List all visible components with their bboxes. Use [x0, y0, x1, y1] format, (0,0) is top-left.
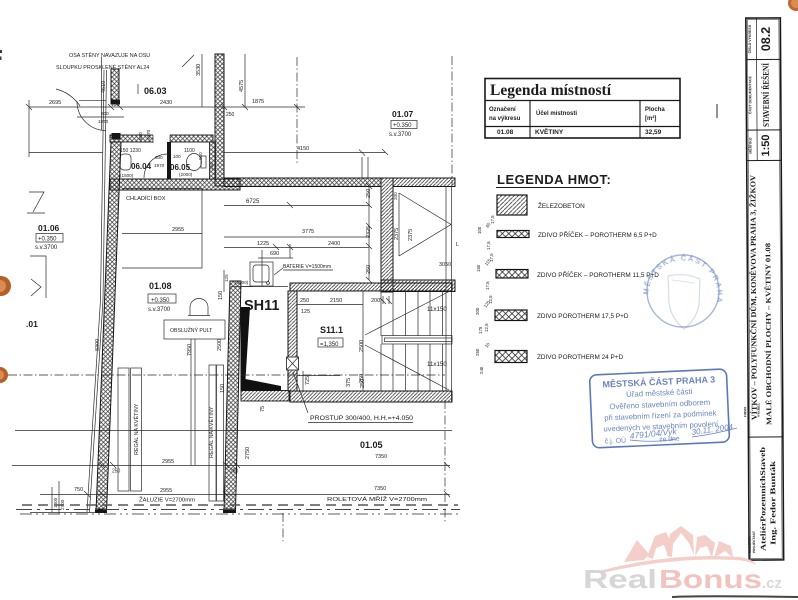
svg-text:ŽELEZOBETON: ŽELEZOBETON: [538, 201, 585, 210]
svg-text:12,5: 12,5: [484, 323, 489, 332]
svg-text:01.06: 01.06: [38, 223, 60, 233]
svg-text:Legenda místností: Legenda místností: [490, 82, 612, 99]
svg-text:01.05: 01.05: [360, 440, 383, 450]
svg-text:REGÁL NA KVĚTINY: REGÁL NA KVĚTINY: [132, 403, 140, 455]
svg-text:AteliérPozemníchStaveb: AteliérPozemníchStaveb: [758, 447, 768, 551]
svg-text:ŽALUZIE V=2700mm: ŽALUZIE V=2700mm: [139, 496, 195, 504]
svg-text:17,5: 17,5: [490, 215, 495, 224]
svg-text:2955: 2955: [162, 459, 174, 465]
svg-text:Real: Real: [583, 564, 657, 594]
svg-text:375: 375: [346, 378, 352, 387]
svg-text:Bonus: Bonus: [659, 564, 762, 594]
svg-text:1970: 1970: [154, 163, 165, 168]
svg-text:150: 150: [220, 384, 226, 393]
svg-text:4150: 4150: [297, 146, 309, 152]
svg-text:Účel místnosti: Účel místnosti: [536, 110, 577, 117]
svg-text:+0.350: +0.350: [393, 123, 412, 129]
svg-text:06.05: 06.05: [170, 163, 191, 172]
svg-text:ZDIVO PŘÍČEK – POROTHERM 11,: ZDIVO PŘÍČEK – POROTHERM 11,5 P+D: [537, 270, 659, 279]
svg-text:12,5: 12,5: [488, 295, 493, 304]
svg-text:2750: 2750: [245, 447, 251, 459]
svg-text:32,59: 32,59: [645, 129, 662, 136]
svg-text:150 1230: 150 1230: [120, 148, 141, 154]
svg-text:800: 800: [101, 111, 109, 116]
svg-text:LEGENDA HMOT:: LEGENDA HMOT:: [497, 172, 611, 187]
svg-text:ČÁST DOKUMENTACE: ČÁST DOKUMENTACE: [747, 75, 752, 114]
svg-text:2375: 2375: [394, 228, 400, 240]
svg-text:690: 690: [270, 251, 279, 257]
svg-text:6725: 6725: [246, 199, 260, 205]
svg-text:s.v.3700: s.v.3700: [148, 307, 171, 313]
svg-text:01.08: 01.08: [497, 129, 514, 136]
svg-text:2500: 2500: [359, 340, 365, 352]
svg-text:ZDIVO POROTHERM 24 P+D: ZDIVO POROTHERM 24 P+D: [537, 354, 623, 361]
svg-text:725: 725: [305, 376, 311, 385]
svg-text:Plocha: Plocha: [645, 107, 665, 113]
svg-text:VÝKRES: VÝKRES: [756, 403, 761, 417]
svg-text:17,5: 17,5: [489, 253, 494, 262]
svg-text:100: 100: [173, 154, 181, 159]
svg-text:175: 175: [478, 326, 483, 334]
svg-text:250: 250: [300, 298, 309, 304]
svg-text:ČÍSLO VÝKRESU: ČÍSLO VÝKRESU: [747, 24, 752, 53]
svg-text:900: 900: [198, 152, 203, 160]
svg-text:+0.350: +0.350: [151, 298, 170, 304]
svg-text:L: L: [456, 242, 459, 248]
svg-text:SLOUPKU PROSKLENÉ STĚNY AL24: SLOUPKU PROSKLENÉ STĚNY AL24: [56, 63, 149, 71]
svg-text:ZDIVO PŘÍČEK – POROTHERM 6,5: ZDIVO PŘÍČEK – POROTHERM 6,5 P+D: [538, 230, 657, 239]
svg-text:150: 150: [111, 102, 120, 108]
svg-text:FIRMA: FIRMA: [743, 406, 747, 417]
svg-text:3775: 3775: [302, 229, 314, 235]
svg-text:VÍTKOV – POLYFUNKČNÍ DŮM, KO: VÍTKOV – POLYFUNKČNÍ DŮM, KONĚVOVA PRAHA…: [747, 175, 758, 421]
svg-text:100: 100: [477, 226, 482, 234]
svg-text:(2000): (2000): [179, 172, 193, 177]
svg-text:s.v.3700: s.v.3700: [389, 132, 412, 138]
svg-text:KVĚTINY: KVĚTINY: [535, 127, 564, 136]
svg-text:Ing. Fedor Bunták: Ing. Fedor Bunták: [768, 460, 778, 545]
svg-text:REGÁL NA KVĚTINY: REGÁL NA KVĚTINY: [207, 406, 215, 458]
svg-text:OSA STĚNY NAVAZUJE NA OSU: OSA STĚNY NAVAZUJE NA OSU: [69, 51, 150, 59]
svg-text:.01: .01: [26, 319, 38, 329]
svg-text:250: 250: [366, 189, 372, 198]
svg-text:INVESTOR: INVESTOR: [748, 536, 752, 553]
svg-text:(1500): (1500): [120, 173, 134, 178]
svg-text:250: 250: [359, 374, 365, 383]
svg-text:7350: 7350: [374, 486, 386, 492]
svg-text:1:50: 1:50: [760, 134, 772, 156]
svg-text:PROSTUP 300/400, H.H.=+4.050: PROSTUP 300/400, H.H.=+4.050: [310, 415, 413, 422]
svg-text:01.08: 01.08: [149, 281, 172, 291]
svg-text:06.03: 06.03: [144, 86, 167, 96]
svg-text:S11.1: S11.1: [320, 325, 343, 335]
svg-text:8300: 8300: [95, 339, 101, 351]
svg-text:[m²]: [m²]: [645, 115, 656, 122]
svg-text:7950: 7950: [187, 344, 193, 356]
svg-text:2695: 2695: [49, 100, 61, 106]
svg-text:250: 250: [112, 469, 121, 475]
svg-text:2955: 2955: [160, 488, 172, 494]
svg-text:na výkresu: na výkresu: [489, 116, 521, 122]
svg-text:s.v.3700: s.v.3700: [35, 245, 58, 251]
svg-text:2150: 2150: [330, 298, 342, 304]
svg-text:750: 750: [74, 487, 83, 493]
svg-text:+0.350: +0.350: [38, 237, 57, 243]
svg-text:ROLETOVÁ MŘÍŽ V=2700mm: ROLETOVÁ MŘÍŽ V=2700mm: [327, 495, 427, 503]
svg-text:250: 250: [366, 265, 372, 274]
svg-text:125: 125: [301, 309, 310, 315]
svg-text:1970: 1970: [146, 129, 151, 140]
svg-text:7350: 7350: [375, 454, 387, 460]
svg-text:STAVEBNÍ ŘEŠENÍ: STAVEBNÍ ŘEŠENÍ: [761, 62, 771, 127]
svg-text:ZDIVO POROTHERM 17,5 P+D: ZDIVO POROTHERM 17,5 P+D: [537, 313, 629, 320]
svg-text:150: 150: [218, 291, 224, 300]
svg-text:2375: 2375: [408, 229, 414, 241]
svg-text:.cz: .cz: [762, 575, 782, 592]
svg-text:11x150: 11x150: [427, 361, 447, 368]
svg-text:CHLADÍCÍ BOX: CHLADÍCÍ BOX: [126, 195, 166, 202]
svg-text:4575: 4575: [239, 80, 245, 92]
svg-text:08.2: 08.2: [759, 27, 773, 51]
svg-text:2955: 2955: [172, 227, 184, 233]
svg-text:2400: 2400: [328, 241, 340, 247]
svg-text:125: 125: [224, 274, 229, 282]
svg-text:06.04: 06.04: [131, 162, 152, 171]
svg-text:BATERIE V=1500mm: BATERIE V=1500mm: [283, 264, 331, 270]
svg-text:3050: 3050: [439, 262, 451, 268]
svg-text:1100: 1100: [184, 148, 195, 154]
svg-text:240: 240: [479, 366, 484, 374]
svg-text:2430: 2430: [160, 100, 172, 106]
svg-text:200: 200: [475, 307, 480, 315]
svg-text:600: 600: [138, 132, 143, 140]
svg-text:01.07: 01.07: [392, 109, 414, 119]
svg-text:200: 200: [371, 298, 380, 304]
svg-text:17,5: 17,5: [485, 281, 490, 290]
svg-text:250: 250: [226, 112, 235, 118]
svg-text:=1,350: =1,350: [320, 342, 339, 348]
svg-text:PROJEKTANT: PROJEKTANT: [752, 531, 756, 553]
svg-text:1000: 1000: [53, 497, 58, 508]
svg-text:3530: 3530: [196, 64, 202, 76]
svg-text:OBSLUŽNÝ PULT: OBSLUŽNÝ PULT: [170, 326, 213, 334]
svg-text:200: 200: [393, 192, 398, 200]
svg-text:1225: 1225: [257, 241, 269, 247]
svg-text:11x150: 11x150: [427, 306, 447, 313]
svg-text:Označení: Označení: [489, 107, 516, 113]
svg-text:75: 75: [260, 406, 266, 412]
svg-text:MĚŘÍTKO: MĚŘÍTKO: [748, 137, 753, 153]
svg-text:150: 150: [476, 264, 481, 272]
svg-text:250: 250: [230, 469, 239, 475]
svg-text:250: 250: [475, 348, 480, 356]
svg-text:2325: 2325: [366, 226, 372, 238]
svg-text:17,5: 17,5: [486, 241, 491, 250]
svg-text:1875: 1875: [252, 99, 264, 105]
svg-text:2500: 2500: [217, 339, 223, 351]
